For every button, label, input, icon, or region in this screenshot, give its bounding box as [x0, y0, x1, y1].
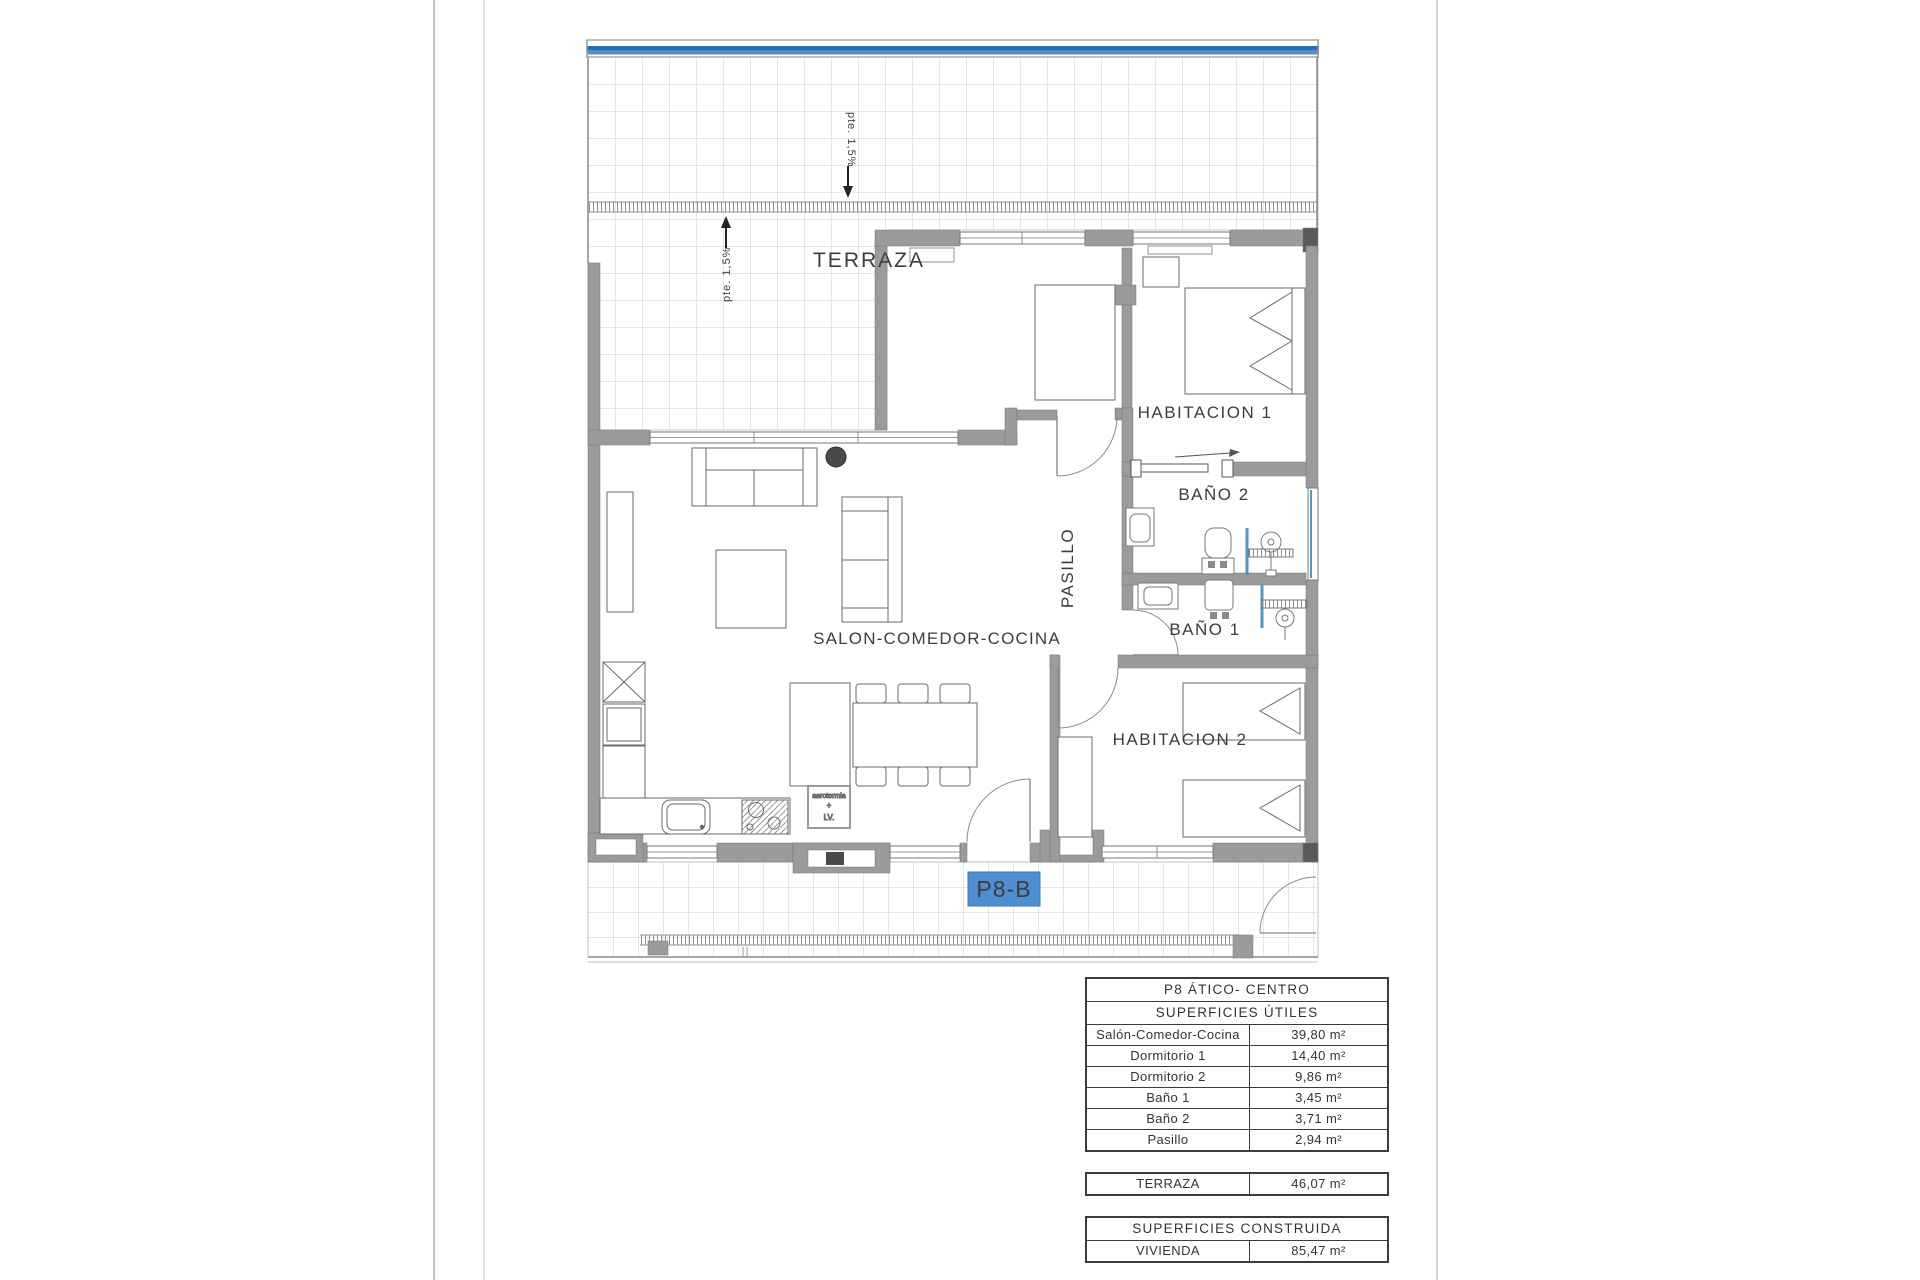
unit-badge: P8-B [968, 872, 1040, 906]
window-bath-east [1308, 488, 1318, 580]
window-bedroom1 [1133, 232, 1230, 254]
wall-west [588, 263, 600, 862]
door-entrance [967, 779, 1030, 842]
dining-table [853, 703, 977, 767]
kitchen-peninsula [790, 683, 850, 786]
window-bedroom2 [1102, 846, 1213, 858]
label-bano1: BAÑO 1 [1169, 620, 1240, 639]
dining-set [853, 684, 977, 786]
label-salon: SALON-COMEDOR-COCINA [813, 629, 1061, 648]
porch-mat [826, 852, 844, 865]
row-label: Baño 2 [1087, 1109, 1250, 1129]
washbasin [1138, 583, 1178, 609]
floor-plan-drawing: aerotermia + LV. [0, 0, 1920, 1280]
tv-sideboard [607, 492, 633, 612]
row-value: 85,47 m² [1250, 1241, 1387, 1261]
useful-surfaces-table: P8 ÁTICO- CENTRO SUPERFICIES ÚTILES Saló… [1085, 977, 1389, 1152]
table-row: Baño 2 3,71 m² [1087, 1109, 1387, 1130]
water-heater-box: aerotermia + LV. [808, 786, 850, 828]
table-row: Dormitorio 1 14,40 m² [1087, 1046, 1387, 1067]
terrace-drain-hatch [588, 202, 1318, 212]
walkway-tiles [588, 862, 1318, 962]
fixtures-bath2 [1126, 508, 1293, 576]
wall-north [875, 230, 960, 246]
toilet [1205, 580, 1233, 619]
furniture-bedroom1 [1143, 257, 1305, 394]
entrance-porch [793, 843, 890, 873]
row-value: 14,40 m² [1250, 1046, 1387, 1066]
hall-wardrobe [1035, 285, 1115, 400]
row-value: 2,94 m² [1250, 1130, 1387, 1150]
row-label: Baño 1 [1087, 1088, 1250, 1108]
sofa-vertical [842, 497, 902, 622]
label-habitacion2: HABITACION 2 [1113, 730, 1248, 749]
label-bano2: BAÑO 2 [1178, 485, 1249, 504]
window-salon-south [890, 846, 960, 858]
window-kitchen [647, 846, 717, 858]
window-hall [960, 232, 1085, 244]
built-surface-table: SUPERFICIES CONSTRUIDA VIVIENDA 85,47 m² [1085, 1216, 1389, 1263]
row-value: 9,86 m² [1250, 1067, 1387, 1087]
ceiling-light-dot [826, 447, 846, 467]
table-row: Baño 1 3,45 m² [1087, 1088, 1387, 1109]
row-label: Salón-Comedor-Cocina [1087, 1025, 1250, 1045]
door-bedroom2 [1058, 668, 1118, 728]
door-bath2-sliding [1131, 449, 1240, 477]
table-row: VIVIENDA 85,47 m² [1087, 1241, 1387, 1261]
sofa-horizontal [692, 448, 817, 506]
stove [742, 800, 788, 834]
table-row: Pasillo 2,94 m² [1087, 1130, 1387, 1150]
kitchen-sink [662, 800, 710, 834]
unit-badge-label: P8-B [976, 876, 1031, 902]
slope-label-top: pte. 1,5% [845, 112, 857, 167]
slope-label-terrace: pte. 1,5% [721, 247, 733, 302]
row-value: 39,80 m² [1250, 1025, 1387, 1045]
terrace-surface-table: TERRAZA 46,07 m² [1085, 1172, 1389, 1196]
table-row: Dormitorio 2 9,86 m² [1087, 1067, 1387, 1088]
wall-post [1005, 408, 1017, 445]
row-value: 3,45 m² [1250, 1088, 1387, 1108]
wall-corner-se [1303, 843, 1318, 862]
walkway-railing-hatch [640, 935, 1240, 945]
water-heater-label-2: + [827, 801, 832, 810]
terrace-railing [586, 40, 1319, 57]
table-row: Salón-Comedor-Cocina 39,80 m² [1087, 1025, 1387, 1046]
oven [603, 704, 645, 745]
table-row: TERRAZA 46,07 m² [1087, 1174, 1387, 1194]
row-label: Dormitorio 2 [1087, 1067, 1250, 1087]
furniture-kitchen: aerotermia + LV. [600, 662, 850, 834]
shower [1261, 585, 1307, 640]
kitchen-counter-west [603, 746, 645, 798]
label-terraza: TERRAZA [813, 249, 925, 272]
wall-east [1306, 246, 1318, 488]
row-value: 3,71 m² [1250, 1109, 1387, 1129]
nightstand [1143, 257, 1179, 287]
water-heater-label-3: LV. [824, 813, 835, 822]
window-salon [650, 432, 958, 443]
row-label: TERRAZA [1087, 1174, 1250, 1194]
fridge [603, 662, 645, 702]
table-title: P8 ÁTICO- CENTRO [1087, 979, 1387, 1002]
floor-plan-page: aerotermia + LV. [0, 0, 1920, 1280]
label-pasillo: PASILLO [1058, 528, 1077, 608]
coffee-table [716, 550, 786, 628]
toilet [1202, 528, 1234, 574]
furniture-bedroom2 [1058, 683, 1305, 837]
water-heater-label-1: aerotermia [812, 793, 846, 800]
label-habitacion1: HABITACION 1 [1138, 403, 1273, 422]
row-label: Pasillo [1087, 1130, 1250, 1150]
shower [1247, 528, 1293, 576]
row-value: 46,07 m² [1250, 1174, 1387, 1194]
row-label: Dormitorio 1 [1087, 1046, 1250, 1066]
bedroom2-wardrobe [1058, 737, 1092, 837]
door-hall [1057, 416, 1117, 476]
row-label: VIVIENDA [1087, 1241, 1250, 1261]
washbasin [1126, 508, 1154, 546]
table-title: SUPERFICIES CONSTRUIDA [1087, 1218, 1387, 1241]
wall-wardrobe [1122, 248, 1132, 408]
table-subtitle: SUPERFICIES ÚTILES [1087, 1002, 1387, 1025]
